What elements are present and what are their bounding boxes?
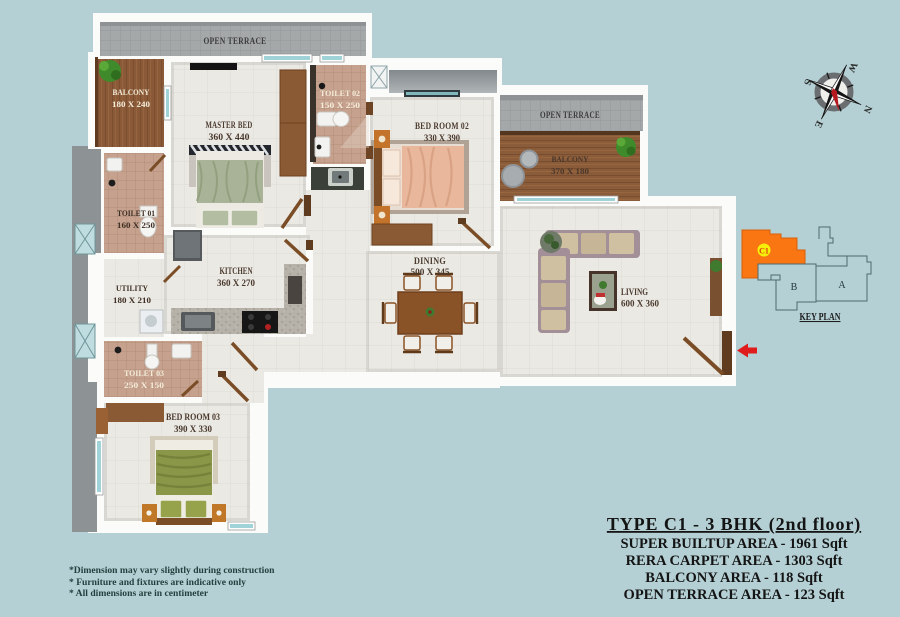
svg-text:360 X 270: 360 X 270 <box>217 279 255 289</box>
svg-text:TYPE C1 - 3 BHK (2nd floor): TYPE C1 - 3 BHK (2nd floor) <box>607 514 861 535</box>
svg-text:370 X 180: 370 X 180 <box>551 166 589 176</box>
svg-text:LIVING: LIVING <box>621 288 648 298</box>
svg-text:KITCHEN: KITCHEN <box>220 267 253 277</box>
svg-text:330 X 390: 330 X 390 <box>424 134 460 144</box>
svg-text:250 X 150: 250 X 150 <box>124 380 164 390</box>
svg-text:A: A <box>838 280 846 291</box>
svg-text:OPEN TERRACE: OPEN TERRACE <box>204 37 267 47</box>
svg-text:UTILITY: UTILITY <box>116 283 148 293</box>
svg-text:RERA CARPET AREA - 1303 Sqft: RERA CARPET AREA - 1303 Sqft <box>626 553 843 569</box>
svg-text:SUPER BUILTUP AREA - 1961 Sqft: SUPER BUILTUP AREA - 1961 Sqft <box>620 536 847 552</box>
svg-text:*Dimension may vary slightly d: *Dimension may vary slightly during cons… <box>69 565 275 576</box>
svg-text:KEY PLAN: KEY PLAN <box>800 312 841 323</box>
svg-text:MASTER BED: MASTER BED <box>206 121 253 131</box>
svg-text:BED ROOM 02: BED ROOM 02 <box>415 122 469 132</box>
svg-text:B: B <box>791 282 798 293</box>
svg-text:* Furniture and fixtures are i: * Furniture and fixtures are indicative … <box>69 577 246 588</box>
svg-text:DINING: DINING <box>414 257 446 267</box>
svg-text:500 X 345: 500 X 345 <box>411 268 450 278</box>
svg-text:BALCONY: BALCONY <box>552 154 589 164</box>
svg-text:150 X 250: 150 X 250 <box>320 100 360 110</box>
svg-text:BALCONY: BALCONY <box>113 87 150 97</box>
svg-text:600 X 360: 600 X 360 <box>621 300 659 310</box>
svg-text:OPEN TERRACE AREA - 123 Sqft: OPEN TERRACE AREA - 123 Sqft <box>624 587 845 603</box>
svg-text:TOILET 01: TOILET 01 <box>117 208 155 218</box>
svg-text:TOILET 03: TOILET 03 <box>124 368 164 378</box>
svg-text:BED ROOM 03: BED ROOM 03 <box>166 413 220 423</box>
svg-text:360 X 440: 360 X 440 <box>209 133 250 143</box>
svg-text:TOILET 02: TOILET 02 <box>320 88 360 98</box>
svg-text:180 X 210: 180 X 210 <box>113 295 151 305</box>
svg-text:OPEN TERRACE: OPEN TERRACE <box>540 110 600 120</box>
svg-text:C1: C1 <box>759 247 769 256</box>
svg-text:390 X 330: 390 X 330 <box>174 425 212 435</box>
svg-text:* All dimensions are in centim: * All dimensions are in centimeter <box>69 588 209 599</box>
svg-text:160 X 250: 160 X 250 <box>117 220 155 230</box>
svg-text:BALCONY AREA - 118 Sqft: BALCONY AREA - 118 Sqft <box>645 570 823 586</box>
svg-text:180 X 240: 180 X 240 <box>112 99 150 109</box>
